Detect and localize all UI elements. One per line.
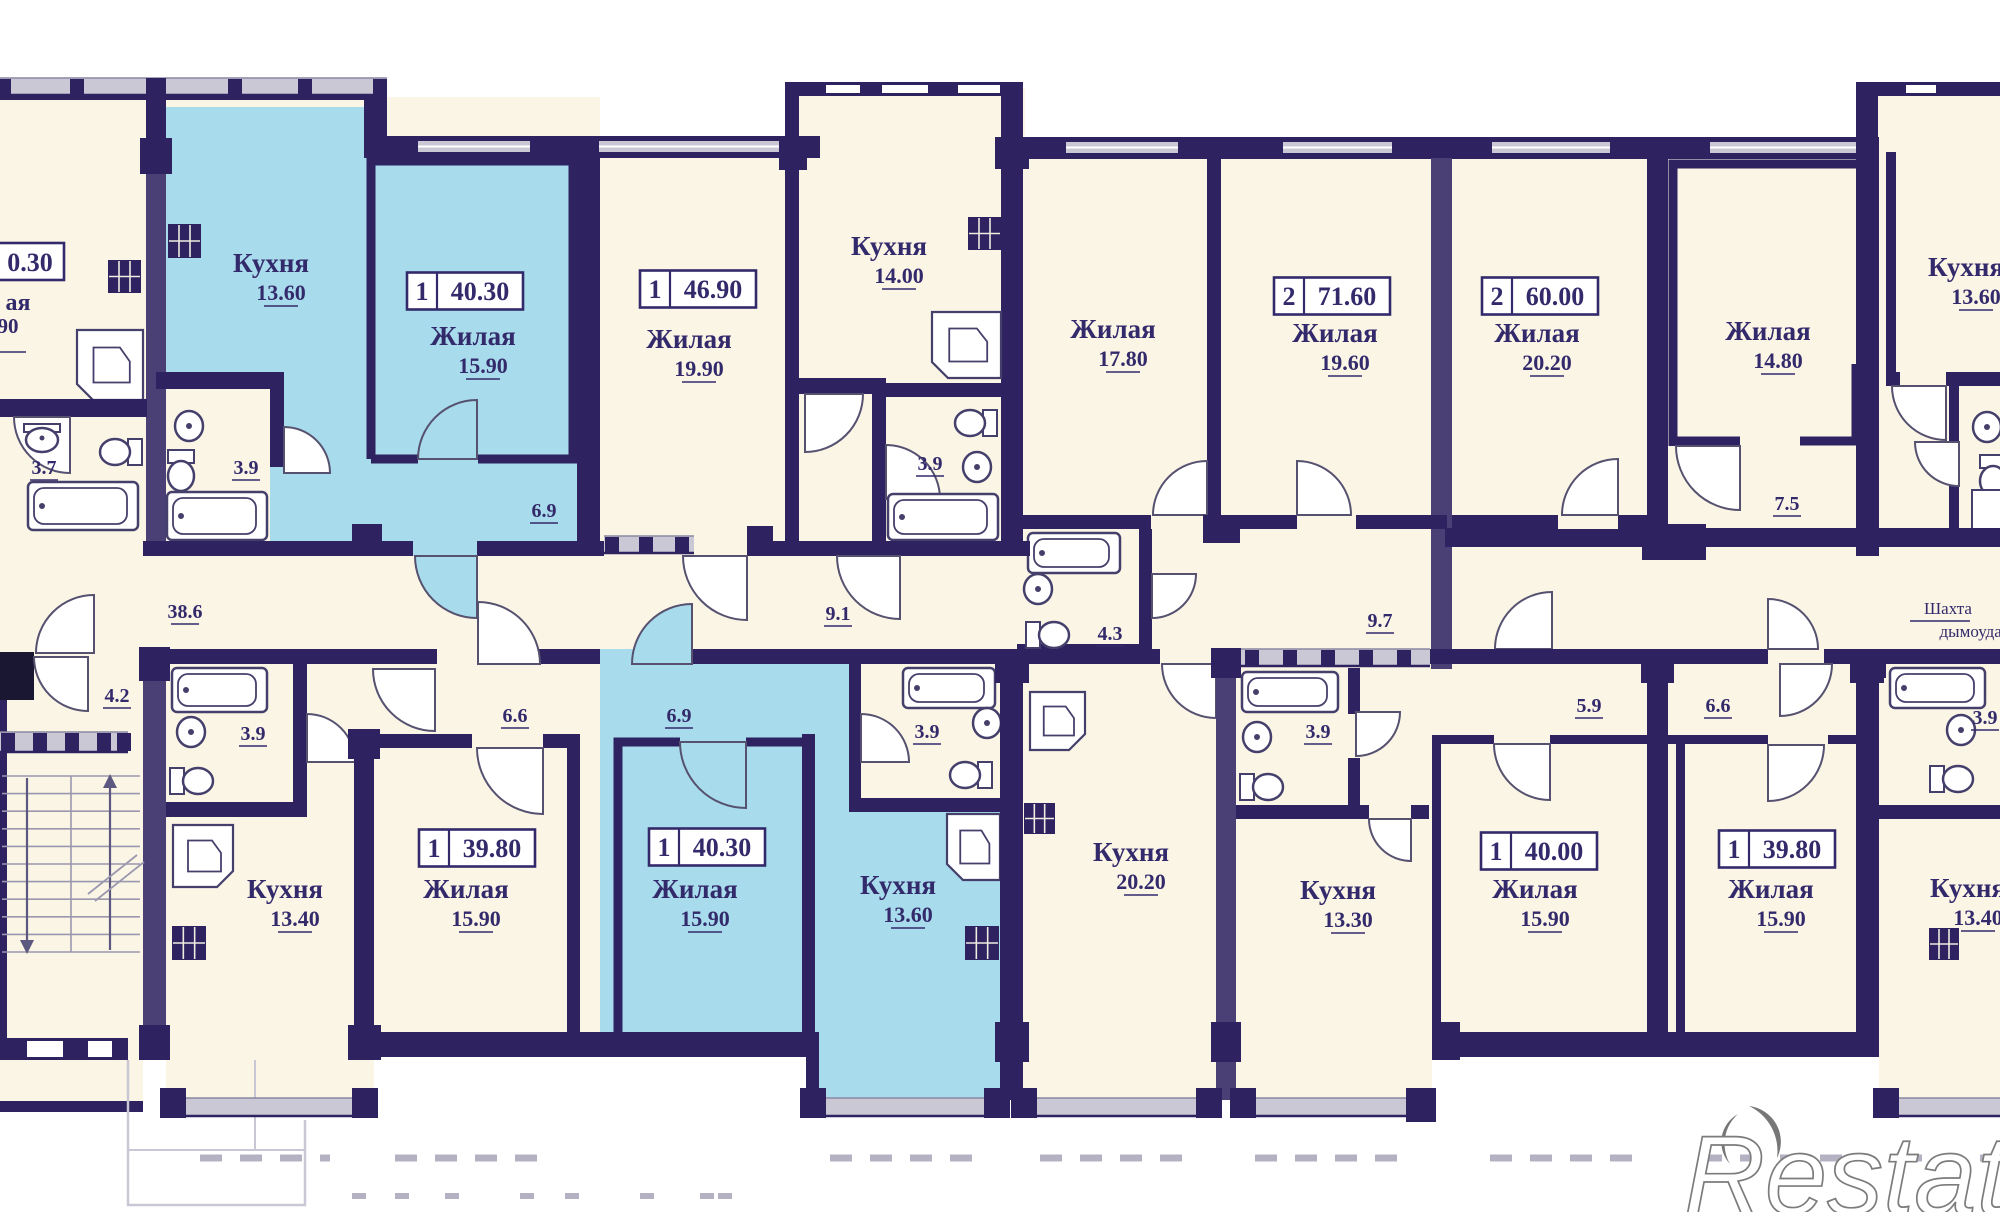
svg-text:60.00: 60.00 [1526, 282, 1585, 311]
svg-text:17.80: 17.80 [1098, 346, 1148, 371]
svg-text:ая: ая [6, 290, 31, 316]
svg-text:Жилая: Жилая [1070, 314, 1156, 344]
svg-text:13.40: 13.40 [1953, 905, 2000, 930]
svg-text:Кухня: Кухня [860, 870, 936, 900]
svg-text:дымоудал: дымоудал [1940, 622, 2000, 641]
svg-text:19.90: 19.90 [674, 356, 724, 381]
svg-text:Жилая: Жилая [1492, 874, 1578, 904]
svg-text:14.00: 14.00 [874, 263, 924, 288]
svg-text:1: 1 [428, 834, 441, 863]
svg-text:19.60: 19.60 [1320, 350, 1370, 375]
svg-text:13.60: 13.60 [1951, 284, 2000, 309]
svg-text:40.30: 40.30 [451, 277, 510, 306]
svg-text:Жилая: Жилая [652, 874, 738, 904]
svg-text:4.2: 4.2 [105, 685, 130, 707]
svg-text:Кухня: Кухня [1930, 873, 2000, 903]
svg-text:40.00: 40.00 [1525, 837, 1584, 866]
svg-text:7.5: 7.5 [1775, 493, 1800, 515]
svg-text:Шахта: Шахта [1924, 599, 1972, 618]
svg-text:38.6: 38.6 [168, 601, 203, 623]
svg-text:40.30: 40.30 [693, 833, 752, 862]
svg-text:4.3: 4.3 [1098, 623, 1123, 645]
svg-text:20.20: 20.20 [1522, 350, 1572, 375]
svg-text:9.1: 9.1 [826, 603, 851, 625]
svg-text:14.80: 14.80 [1753, 348, 1803, 373]
svg-text:15.90: 15.90 [451, 906, 501, 931]
svg-text:15.90: 15.90 [458, 353, 508, 378]
svg-text:Кухня: Кухня [1928, 252, 2000, 282]
svg-text:Кухня: Кухня [233, 248, 309, 278]
svg-text:1: 1 [1490, 837, 1503, 866]
svg-text:5.9: 5.9 [1577, 695, 1602, 717]
svg-text:90: 90 [0, 314, 19, 338]
svg-text:Restate: Restate [1684, 1113, 2000, 1212]
svg-text:6.6: 6.6 [503, 705, 528, 727]
svg-text:1: 1 [1728, 835, 1741, 864]
svg-text:6.9: 6.9 [667, 705, 692, 727]
svg-text:9.7: 9.7 [1368, 610, 1393, 632]
svg-text:3.9: 3.9 [915, 721, 940, 743]
svg-text:Жилая: Жилая [430, 321, 516, 351]
svg-text:Жилая: Жилая [646, 324, 732, 354]
svg-text:13.60: 13.60 [883, 902, 933, 927]
svg-text:3.9: 3.9 [234, 457, 259, 479]
svg-text:39.80: 39.80 [1763, 835, 1822, 864]
svg-text:Жилая: Жилая [1292, 318, 1378, 348]
svg-text:3.7: 3.7 [32, 457, 57, 479]
svg-text:6.6: 6.6 [1706, 695, 1731, 717]
svg-text:3.9: 3.9 [1306, 721, 1331, 743]
svg-text:71.60: 71.60 [1318, 282, 1377, 311]
svg-text:13.60: 13.60 [256, 280, 306, 305]
svg-text:1: 1 [649, 275, 662, 304]
svg-text:15.90: 15.90 [680, 906, 730, 931]
svg-text:13.40: 13.40 [270, 906, 320, 931]
svg-text:13.30: 13.30 [1323, 907, 1373, 932]
svg-text:1: 1 [416, 277, 429, 306]
svg-text:2: 2 [1491, 282, 1504, 311]
svg-text:39.80: 39.80 [463, 834, 522, 863]
svg-text:0.30: 0.30 [7, 248, 53, 277]
svg-text:2: 2 [1283, 282, 1296, 311]
svg-text:1: 1 [658, 833, 671, 862]
svg-text:3.9: 3.9 [241, 723, 266, 745]
svg-text:6.9: 6.9 [532, 500, 557, 522]
svg-text:Жилая: Жилая [1725, 316, 1811, 346]
svg-text:Жилая: Жилая [423, 874, 509, 904]
svg-text:Жилая: Жилая [1494, 318, 1580, 348]
svg-text:46.90: 46.90 [684, 275, 743, 304]
svg-text:3.9: 3.9 [918, 453, 943, 475]
svg-text:Кухня: Кухня [1300, 875, 1376, 905]
svg-text:15.90: 15.90 [1520, 906, 1570, 931]
svg-text:15.90: 15.90 [1756, 906, 1806, 931]
svg-text:20.20: 20.20 [1116, 869, 1166, 894]
svg-text:Жилая: Жилая [1728, 874, 1814, 904]
svg-text:Кухня: Кухня [247, 874, 323, 904]
svg-text:Кухня: Кухня [1093, 837, 1169, 867]
svg-text:Кухня: Кухня [851, 231, 927, 261]
svg-text:3.9: 3.9 [1973, 707, 1998, 729]
